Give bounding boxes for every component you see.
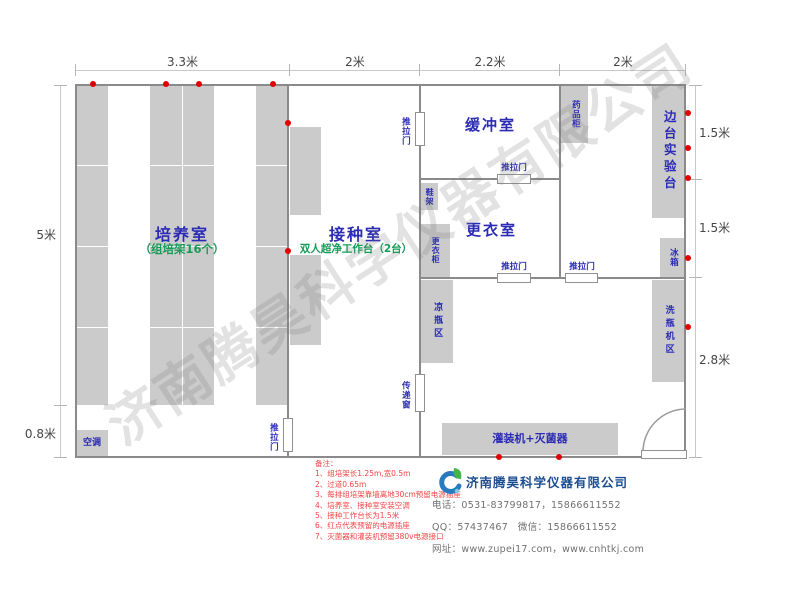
company-qq-wechat: QQ：57437467 微信：15866611552	[432, 519, 617, 533]
outlet-dot	[685, 145, 691, 151]
air-conditioner-label: 空调	[83, 438, 101, 448]
company-logo-icon	[436, 467, 464, 497]
filler-sterilizer-label: 灌装机+灭菌器	[492, 433, 567, 446]
wall-buffer-right	[559, 84, 561, 279]
room-sublabel-culture: （组培架16个）	[122, 241, 242, 257]
left-dimension-line	[60, 85, 61, 458]
outlet-dot	[556, 454, 562, 460]
wardrobe-label: 更衣柜	[431, 237, 440, 264]
room-label-changing: 更衣室	[431, 219, 552, 240]
sliding-door-culture	[283, 418, 293, 452]
sliding-door-changing-left-label: 推拉门	[488, 263, 540, 272]
outlet-dot	[496, 454, 502, 460]
air-conditioner: 空调	[76, 430, 108, 456]
company-name: 济南腾昊科学仪器有限公司	[466, 472, 628, 491]
dim-tick	[54, 85, 67, 86]
sliding-door-buffer-changing	[497, 174, 531, 184]
medicine-cabinet-label: 药品柜	[570, 100, 580, 129]
fridge: 冰箱	[660, 238, 685, 277]
right-dimension-line	[695, 85, 696, 458]
bottle-washer-area-label: 洗瓶机区	[663, 305, 673, 357]
side-lab-bench-label: 边台实验台	[661, 110, 675, 193]
dim-left-08m: 0.8米	[22, 425, 56, 442]
dim-top-1: 3.3米	[75, 53, 290, 70]
company-phone: 电话：0531-83799817，15866611552	[432, 497, 621, 511]
dim-right-15a: 1.5米	[699, 124, 730, 141]
outlet-dot	[90, 81, 96, 87]
top-dimension-line	[75, 70, 686, 71]
sliding-door-culture-label: 推拉门	[268, 419, 277, 455]
room-label-buffer: 缓冲室	[430, 114, 551, 135]
dim-right-28m: 2.8米	[699, 351, 730, 368]
sliding-door-buffer	[415, 112, 425, 146]
culture-rack-column-4	[256, 85, 287, 405]
outlet-dot	[685, 175, 691, 181]
sliding-door-buffer-label: 推拉门	[400, 113, 409, 149]
dim-top-3: 2.2米	[420, 53, 560, 70]
outlet-dot	[270, 81, 276, 87]
sliding-door-changing-left	[497, 273, 531, 283]
clean-bench-2	[290, 255, 321, 345]
culture-rack-column-1	[76, 85, 108, 405]
bottle-washer-area: 洗瓶机区	[652, 280, 685, 382]
company-website: 网址：www.zupei17.com，www.cnhtkj.com	[432, 541, 644, 555]
clean-bench-1	[290, 127, 321, 215]
dim-tick	[54, 405, 67, 406]
room-sublabel-inoculation: 双人超净工作台（2台）	[291, 241, 421, 256]
shoe-rack: 鞋架	[421, 183, 438, 210]
notes-title: 备注：	[315, 459, 505, 469]
pass-window-label: 传递窗	[400, 376, 409, 414]
dim-tick	[689, 457, 702, 458]
outlet-dot	[285, 248, 291, 254]
pass-window	[415, 374, 425, 412]
shoe-rack-label: 鞋架	[425, 188, 434, 206]
outlet-dot	[196, 81, 202, 87]
dim-tick	[54, 457, 67, 458]
cool-bottle-area: 凉瓶区	[421, 280, 453, 363]
dim-left-5m: 5米	[30, 226, 56, 243]
side-lab-bench: 边台实验台	[652, 85, 685, 218]
filler-sterilizer: 灌装机+灭菌器	[442, 423, 618, 455]
sliding-door-changing-right-label: 推拉门	[556, 263, 608, 272]
dim-top-2: 2米	[290, 53, 420, 70]
wall-culture-inoculation	[287, 84, 289, 458]
floorplan-canvas: 3.3米 2米 2.2米 2米 5米 0.8米 1.5米 1.5米 2.8米 药…	[0, 0, 800, 600]
outlet-dot	[285, 120, 291, 126]
outlet-dot	[685, 324, 691, 330]
medicine-cabinet: 药品柜	[561, 85, 588, 143]
dim-right-15b: 1.5米	[699, 219, 730, 236]
outlet-dot	[163, 81, 169, 87]
dim-tick	[689, 179, 702, 180]
dim-top-4: 2米	[560, 53, 686, 70]
sliding-door-buffer-changing-label: 推拉门	[488, 164, 540, 173]
fridge-label: 冰箱	[668, 248, 678, 267]
outlet-dot	[685, 255, 691, 261]
outlet-dot	[685, 110, 691, 116]
entrance-door-leaf	[641, 450, 687, 459]
sliding-door-changing-right	[565, 273, 598, 283]
wall-changing-bottom	[420, 277, 686, 279]
dim-tick	[689, 85, 702, 86]
cool-bottle-area-label: 凉瓶区	[432, 302, 442, 341]
dim-tick	[689, 277, 702, 278]
wall-buffer-changing	[420, 178, 560, 180]
